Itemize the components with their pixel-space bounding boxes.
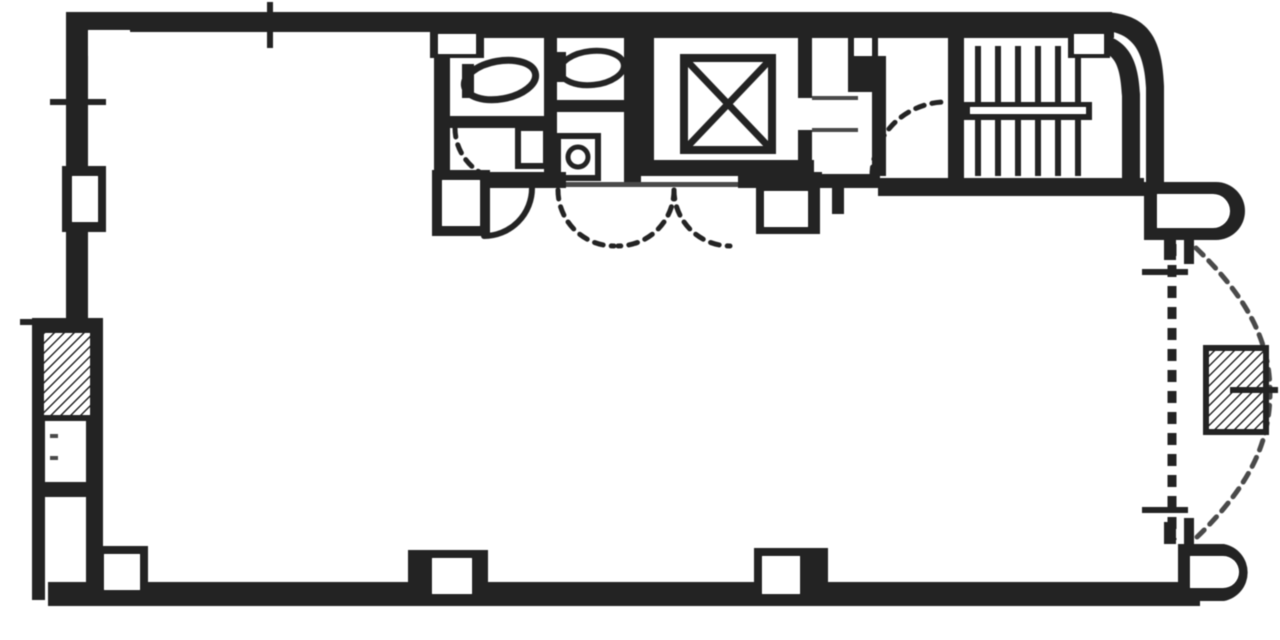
washbasin: [558, 136, 598, 178]
pillar-inset: [104, 554, 140, 590]
floor-plan: [0, 0, 1280, 640]
door-arc-dashed: [558, 190, 614, 246]
stair-left-wall: [948, 36, 964, 186]
door-arc-solid: [484, 188, 532, 236]
bottom-wall: [48, 582, 1200, 606]
wc-bowl: [558, 48, 625, 89]
elevator: [640, 28, 858, 176]
stair-mid-rail-slit: [970, 107, 1086, 114]
door-arc-dashed: [618, 190, 674, 246]
staircase: [964, 32, 1140, 178]
left-wall: [66, 12, 88, 318]
scanned-floor-plan-page: [0, 0, 1280, 640]
shaft-right-wall-upper: [798, 28, 812, 98]
right-stub-2: [1184, 240, 1194, 264]
stair-bottom-wall: [878, 178, 1144, 196]
wall-notch-inset: [1074, 34, 1104, 54]
door-jamb-stub: [832, 188, 844, 214]
core-top-underline: [434, 30, 1114, 38]
left-bay: [32, 318, 103, 600]
wc-tank: [556, 52, 566, 82]
pier-inset: [72, 176, 98, 222]
basin-bowl: [568, 147, 588, 167]
balcony: [1196, 248, 1278, 538]
pillar-inset: [762, 556, 800, 594]
plan-root: [20, 2, 1278, 606]
shaft-left-wall: [640, 28, 654, 176]
pillar-inset: [432, 558, 472, 594]
top-wall: [66, 12, 1112, 32]
bay-divider-wall: [44, 482, 94, 497]
pier-inset: [764, 191, 808, 227]
shaft-bottom-wall: [640, 160, 814, 176]
round-bay-bottom-inset: [1190, 556, 1239, 588]
shaft-hatch-box: [41, 330, 93, 418]
toilet-fixtures: [455, 48, 626, 180]
washbasin: [518, 128, 546, 166]
toilet-partition-right: [557, 100, 624, 112]
round-bay-top-inset: [1157, 194, 1230, 228]
toilet-elevator-wall: [624, 28, 641, 182]
wall-notch-inset: [438, 34, 476, 54]
wc-tank: [462, 64, 474, 98]
door-sill: [566, 182, 738, 187]
right-stub-4: [1184, 518, 1194, 544]
hall-pier-inset: [854, 38, 872, 56]
door-arc-dashed: [674, 190, 730, 246]
floor-plan-drawing: [0, 0, 1280, 640]
pier-inset: [442, 180, 480, 226]
corner-column-inset: [88, 30, 130, 56]
